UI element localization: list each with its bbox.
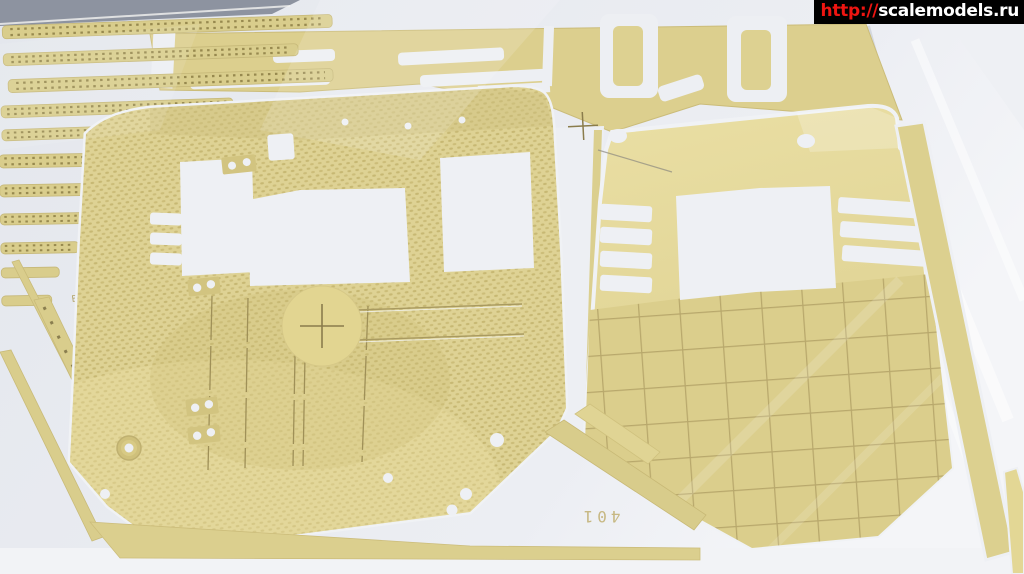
frame-u-slot-tongue <box>741 30 771 90</box>
hole <box>100 489 110 499</box>
ladder-slot <box>600 204 653 223</box>
hole <box>447 505 458 516</box>
brass-strip <box>1 267 59 278</box>
hole <box>797 134 815 148</box>
frame-u-slot-tongue <box>613 26 643 86</box>
frame-slot-cutout <box>542 26 554 86</box>
hole <box>490 433 504 447</box>
pad-with-holes <box>221 154 257 174</box>
cutout-window <box>248 188 410 286</box>
photo-canvas: ETP ETP ETP <box>0 0 1024 574</box>
ladder-slot <box>600 275 653 294</box>
ladder-slot <box>150 212 182 225</box>
hole <box>609 129 627 143</box>
sheet-number-etch: 401 <box>580 507 621 526</box>
pad-with-holes <box>187 276 221 296</box>
pad-with-holes <box>185 396 219 416</box>
watermark-site: scalemodels.ru <box>878 1 1019 21</box>
ladder-slot <box>150 252 182 265</box>
ladder-slot <box>600 251 653 270</box>
cutout-square <box>267 133 295 161</box>
photo-of-photoetch-fret: ETP ETP ETP <box>0 0 1024 574</box>
ladder-slot <box>150 232 182 245</box>
hole <box>460 488 472 500</box>
pad-with-holes <box>187 424 221 444</box>
ladder-slot <box>600 227 653 246</box>
cutout-window <box>440 152 534 272</box>
cutout-window <box>676 186 836 300</box>
serrated-strip <box>1 242 79 254</box>
watermark-protocol: http:// <box>821 1 879 21</box>
hole <box>459 117 466 124</box>
watermark: http://scalemodels.ru <box>814 0 1024 24</box>
grommet-hole <box>117 436 141 460</box>
hole <box>383 473 393 483</box>
cutout-window <box>180 158 255 276</box>
